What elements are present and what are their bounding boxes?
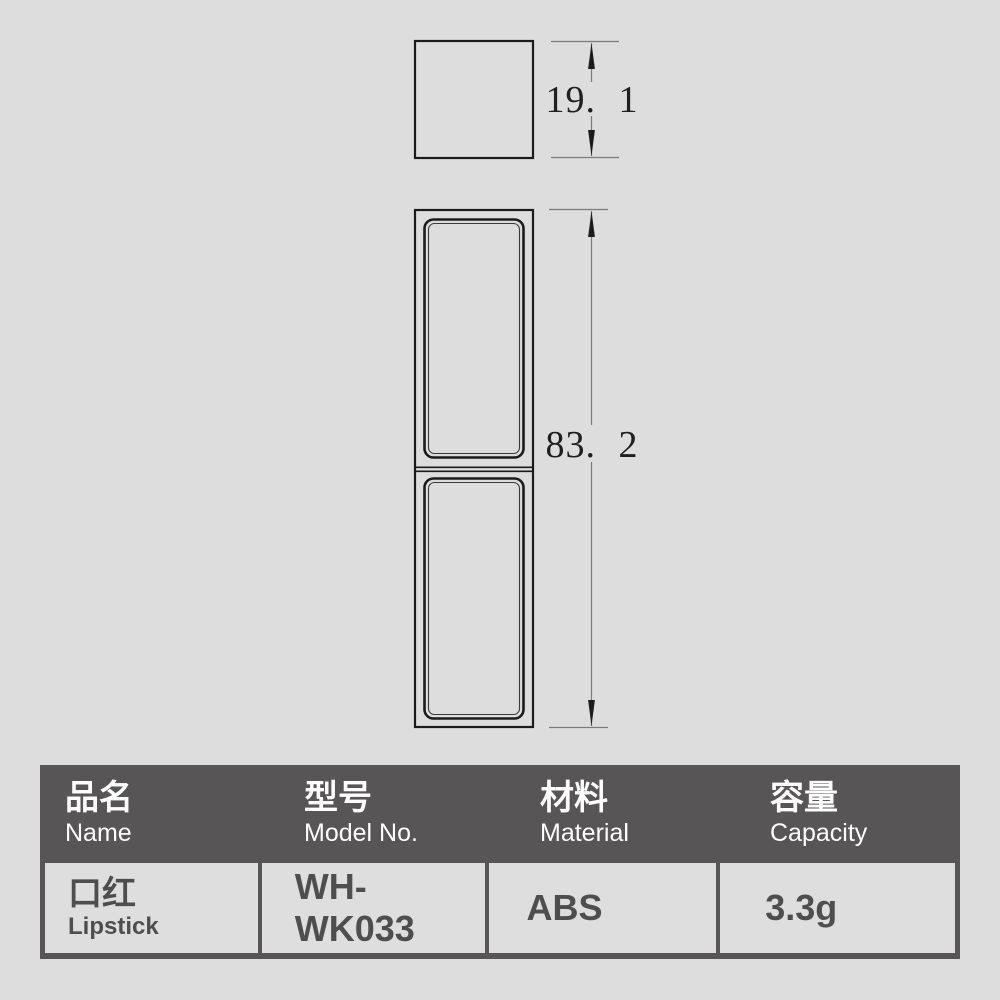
cell-material: ABS bbox=[489, 863, 717, 953]
cap-outline bbox=[415, 41, 533, 158]
product-name-zh: 口红 bbox=[68, 875, 258, 913]
cap-inner-panel bbox=[425, 220, 524, 458]
cell-product-name: 口红 Lipstick bbox=[45, 863, 258, 953]
header-cell-name: 品名 Name bbox=[40, 765, 270, 863]
cap-dimension-label: 19. 1 bbox=[546, 79, 639, 121]
base-inner-panel-line bbox=[429, 483, 520, 715]
technical-drawing: 19. 1 83. 2 bbox=[0, 0, 1000, 760]
capacity-value: 3.3g bbox=[765, 887, 955, 929]
cell-model-no: WH-WK033 bbox=[262, 863, 485, 953]
dimension-arrow-up bbox=[588, 211, 595, 237]
table-body-row: 口红 Lipstick WH-WK033 ABS 3.3g bbox=[40, 863, 960, 959]
material-value: ABS bbox=[527, 887, 717, 929]
header-cell-capacity: 容量 Capacity bbox=[730, 765, 960, 863]
dimension-arrow-down bbox=[588, 130, 595, 156]
lipstick-spec-sheet: 19. 1 83. 2 品名 Name bbox=[0, 0, 1000, 1000]
header-cell-material: 材料 Material bbox=[500, 765, 730, 863]
header-material-en: Material bbox=[540, 818, 730, 849]
header-name-en: Name bbox=[65, 818, 270, 849]
header-material-zh: 材料 bbox=[540, 778, 730, 818]
product-name-en: Lipstick bbox=[68, 913, 258, 941]
header-cell-model-no: 型号 Model No. bbox=[270, 765, 500, 863]
header-model-en: Model No. bbox=[304, 818, 500, 849]
dimension-arrow-down bbox=[588, 700, 595, 726]
cell-capacity: 3.3g bbox=[720, 863, 955, 953]
base-inner-panel bbox=[425, 479, 524, 719]
header-capacity-en: Capacity bbox=[770, 818, 960, 849]
header-capacity-zh: 容量 bbox=[770, 778, 960, 818]
cap-height-dimension: 19. 1 bbox=[546, 42, 639, 158]
model-no-value: WH-WK033 bbox=[295, 866, 485, 950]
table-header-row: 品名 Name 型号 Model No. 材料 Material 容量 Capa… bbox=[40, 765, 960, 863]
body-height-dimension: 83. 2 bbox=[546, 210, 639, 728]
body-outline bbox=[415, 210, 533, 727]
cap-inner-panel-line bbox=[429, 224, 520, 454]
spec-table: 品名 Name 型号 Model No. 材料 Material 容量 Capa… bbox=[40, 765, 960, 959]
body-dimension-label: 83. 2 bbox=[546, 424, 639, 466]
header-model-zh: 型号 bbox=[304, 778, 500, 818]
header-name-zh: 品名 bbox=[65, 778, 270, 818]
dimension-arrow-up bbox=[588, 43, 595, 69]
